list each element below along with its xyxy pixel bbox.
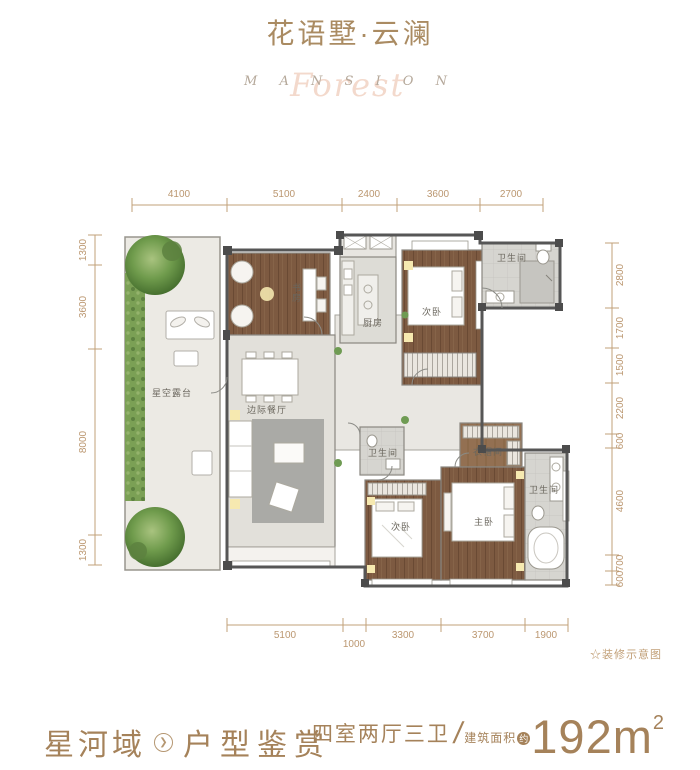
dim-top-1: 4100 xyxy=(168,189,191,200)
shower-area xyxy=(520,261,554,303)
dining-set xyxy=(242,352,298,402)
dim-top-3: 2400 xyxy=(358,189,381,200)
wardrobe xyxy=(404,353,476,377)
floor-lamp xyxy=(230,499,240,509)
area-prefix: 建筑面积 xyxy=(464,729,516,746)
area-row: 四室两厅三卫 / 建筑面积 约 192m 2 xyxy=(312,712,664,757)
dim-bottom-4: 3700 xyxy=(472,630,495,641)
room-label-bath-top: 卫生间 xyxy=(497,252,527,263)
bedside-light xyxy=(404,333,413,342)
living-sofa xyxy=(229,421,252,497)
brand-name: 星河域 xyxy=(44,720,146,764)
dim-left-3: 8000 xyxy=(78,430,89,453)
slash-divider: / xyxy=(451,717,465,751)
bedside-light xyxy=(516,471,524,479)
watermark-mansion-letters: M A N S I O N xyxy=(244,74,456,89)
wardrobe xyxy=(463,426,519,438)
approx-badge: 约 xyxy=(517,732,530,745)
dim-left-4: 1300 xyxy=(78,538,89,561)
room-kitchen: 厨房 xyxy=(340,257,396,343)
room-study: 书房 xyxy=(227,253,330,335)
dim-right-1: 2800 xyxy=(615,263,626,286)
room-label-kitchen: 厨房 xyxy=(363,317,383,328)
dim-bottom-5: 1900 xyxy=(535,630,558,641)
room-label-terrace: 星空露台 xyxy=(152,387,192,398)
watermark: Forest M A N S I O N xyxy=(0,72,700,112)
wardrobe xyxy=(368,483,426,495)
section-title: 户型鉴赏 xyxy=(183,720,331,764)
dim-right-5: 600 xyxy=(615,432,626,449)
room-bath-mid: 卫生间 xyxy=(360,427,404,475)
dim-bottom-2: 1000 xyxy=(343,639,366,650)
layout-type: 四室两厅三卫 xyxy=(312,718,450,748)
area-superscript: 2 xyxy=(653,712,664,735)
window xyxy=(412,241,468,250)
dim-right-6: 4600 xyxy=(615,489,626,512)
room-bedroom-top: 次卧 xyxy=(402,241,483,385)
bedside-light xyxy=(404,261,413,270)
swirl-icon: ❯ xyxy=(154,733,173,752)
study-armchair xyxy=(231,261,253,283)
wardrobe xyxy=(507,441,520,465)
dim-bottom-1: 5100 xyxy=(274,630,297,641)
dim-left-2: 3600 xyxy=(78,295,89,318)
dim-top-5: 2700 xyxy=(500,189,523,200)
room-label-bedroom-second: 次卧 xyxy=(391,521,411,532)
study-armchair xyxy=(231,305,253,327)
room-cloakroom: 衣帽间 xyxy=(460,423,522,467)
room-bedroom-second: 次卧 xyxy=(365,480,441,586)
dim-top-4: 3600 xyxy=(427,189,450,200)
dim-left-1: 1300 xyxy=(78,238,89,261)
bedside-light xyxy=(367,565,375,573)
dim-right-8: 600 xyxy=(615,570,626,587)
room-master-bedroom: 主卧 xyxy=(441,467,525,586)
bedside-light xyxy=(367,497,375,505)
dim-right-3: 1500 xyxy=(615,353,626,376)
coffee-table xyxy=(274,443,304,463)
dim-right-4: 2200 xyxy=(615,396,626,419)
bedside-light xyxy=(516,563,524,571)
room-label-master-bedroom: 主卧 xyxy=(474,516,494,527)
footer: 星河域 ❯ 户型鉴赏 四室两厅三卫 / 建筑面积 约 192m 2 xyxy=(0,712,700,770)
dim-bottom-3: 3300 xyxy=(392,630,415,641)
room-label-study: 书房 xyxy=(291,283,301,303)
dim-right-7: 700 xyxy=(615,554,626,571)
dim-right-2: 1700 xyxy=(615,316,626,339)
bed-bench xyxy=(444,493,451,531)
toilet xyxy=(532,506,544,520)
toilet xyxy=(537,250,549,264)
room-terrace: 星空露台 xyxy=(125,235,220,570)
room-label-bath-mid: 卫生间 xyxy=(368,447,398,458)
room-label-hall: 边际餐厅 xyxy=(247,404,287,415)
room-bath-master: 卫生间 xyxy=(525,453,569,580)
room-bath-top: 卫生间 xyxy=(482,243,560,308)
sink xyxy=(386,459,400,469)
toilet xyxy=(367,435,377,447)
area-number: 192m xyxy=(531,717,653,757)
brand-row: 星河域 ❯ 户型鉴赏 xyxy=(44,720,331,764)
poster-page: 花语墅·云澜 Forest M A N S I O N xyxy=(0,0,700,770)
room-label-bath-master: 卫生间 xyxy=(529,484,559,495)
study-desk xyxy=(303,269,316,321)
dim-top-2: 5100 xyxy=(273,189,296,200)
terrace-planting-bed xyxy=(125,273,145,501)
decor-note: ☆装修示意图 xyxy=(590,646,662,662)
page-title: 花语墅·云澜 xyxy=(0,12,700,52)
study-light xyxy=(260,287,274,301)
floor-lamp xyxy=(230,410,240,420)
room-hall: 边际餐厅 xyxy=(227,335,335,567)
floor-plan: 4100 5100 2400 3600 2700 1300 3600 8000 … xyxy=(60,165,640,665)
room-label-bedroom-top: 次卧 xyxy=(422,306,442,317)
